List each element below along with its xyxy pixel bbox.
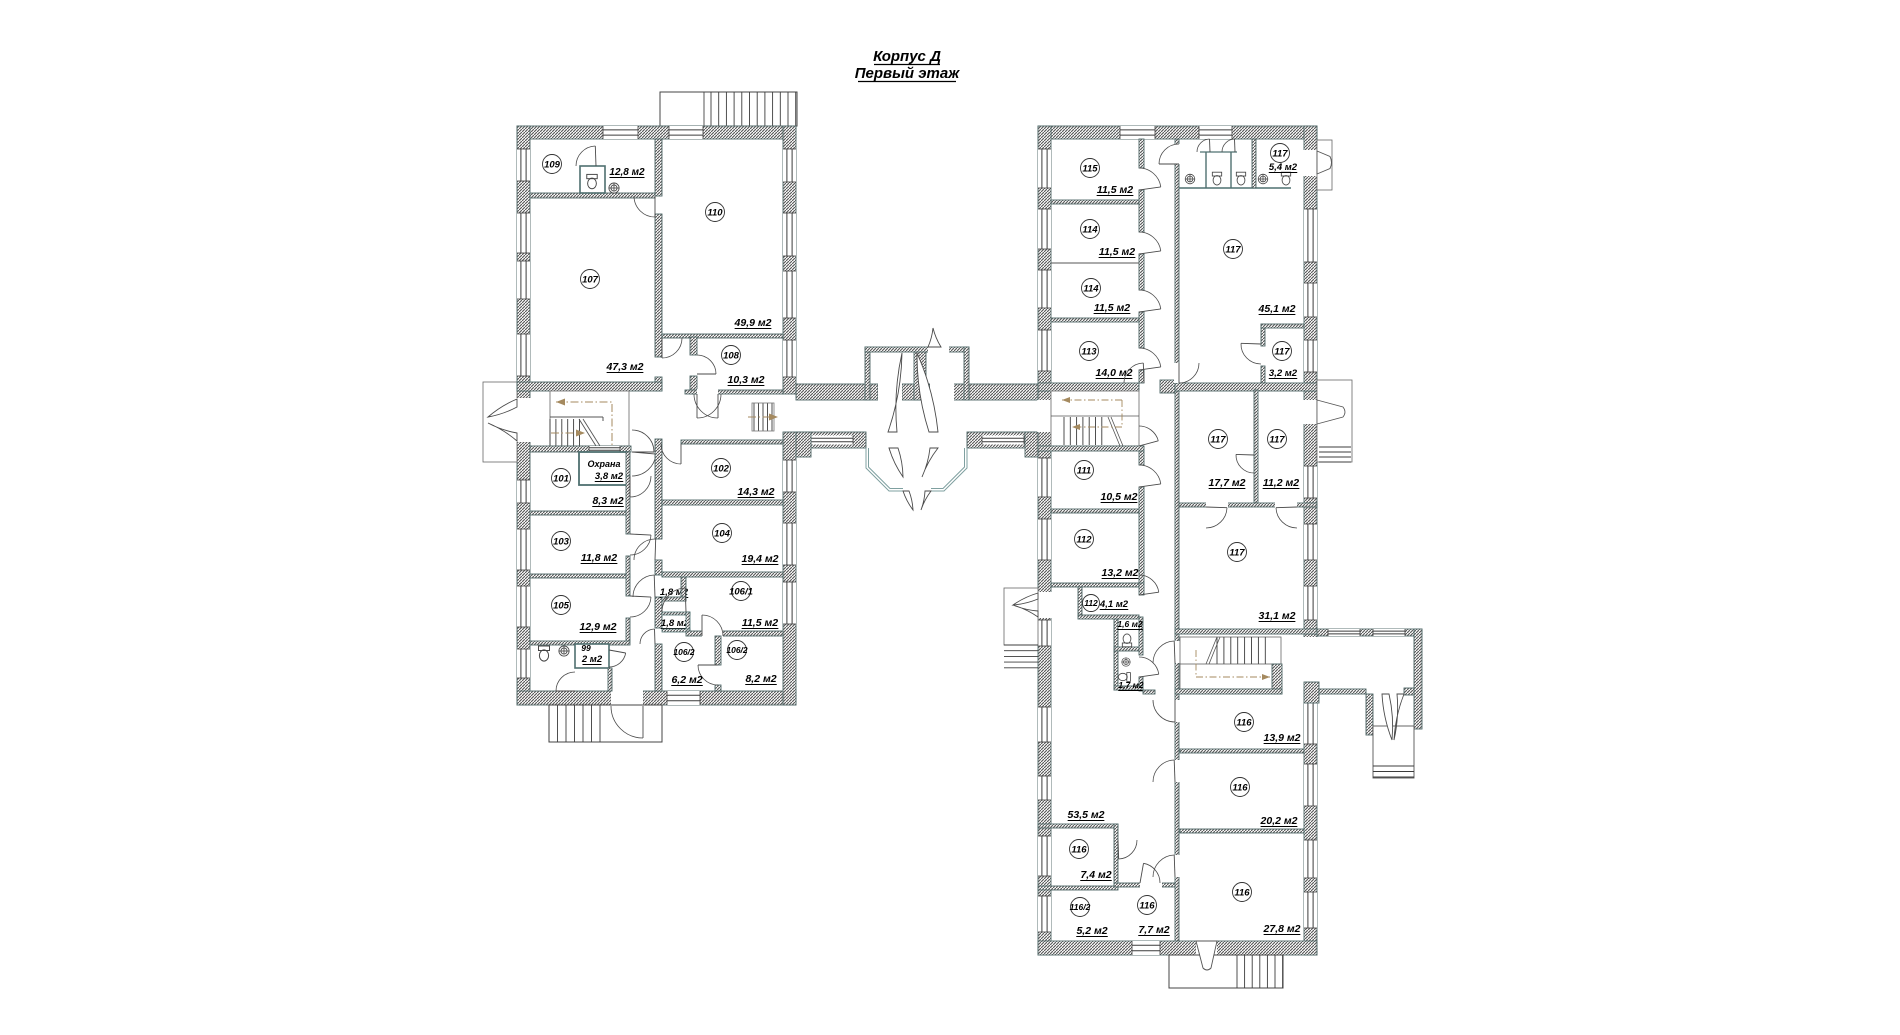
svg-text:10,5 м2: 10,5 м2 <box>1101 491 1138 503</box>
svg-text:114: 114 <box>1083 283 1099 294</box>
svg-text:117: 117 <box>1229 547 1245 558</box>
svg-text:11,5 м2: 11,5 м2 <box>1099 246 1135 258</box>
svg-text:13,2 м2: 13,2 м2 <box>1102 567 1139 579</box>
svg-text:27,8 м2: 27,8 м2 <box>1263 923 1301 935</box>
svg-text:49,9 м2: 49,9 м2 <box>734 317 772 329</box>
svg-text:11,5 м2: 11,5 м2 <box>742 617 778 629</box>
svg-text:117: 117 <box>1272 148 1288 159</box>
svg-text:112: 112 <box>1084 598 1098 608</box>
svg-text:104: 104 <box>714 528 731 539</box>
svg-text:101: 101 <box>553 473 569 484</box>
svg-text:107: 107 <box>582 274 599 285</box>
svg-text:111: 111 <box>1077 465 1091 476</box>
svg-text:11,5 м2: 11,5 м2 <box>1097 184 1133 196</box>
svg-text:112: 112 <box>1076 534 1092 545</box>
svg-text:2 м2: 2 м2 <box>581 654 603 665</box>
svg-text:53,5 м2: 53,5 м2 <box>1068 809 1105 821</box>
svg-text:116/2: 116/2 <box>1070 902 1091 912</box>
svg-text:7,4 м2: 7,4 м2 <box>1080 869 1111 881</box>
svg-text:1,7 м2: 1,7 м2 <box>1118 680 1143 690</box>
svg-text:116: 116 <box>1139 900 1155 911</box>
svg-text:7,7 м2: 7,7 м2 <box>1138 924 1169 936</box>
svg-text:99: 99 <box>581 643 591 653</box>
svg-text:116: 116 <box>1071 844 1087 855</box>
svg-text:12,9 м2: 12,9 м2 <box>580 621 617 633</box>
svg-text:13,9 м2: 13,9 м2 <box>1264 732 1301 744</box>
svg-text:106/2: 106/2 <box>673 647 695 657</box>
svg-text:106/1: 106/1 <box>729 586 753 597</box>
svg-text:117: 117 <box>1269 434 1285 445</box>
svg-text:116: 116 <box>1234 887 1250 898</box>
svg-text:10,3 м2: 10,3 м2 <box>728 374 765 386</box>
svg-text:106/2: 106/2 <box>726 645 748 655</box>
svg-text:105: 105 <box>553 600 570 611</box>
svg-text:115: 115 <box>1082 163 1098 174</box>
svg-text:4,1 м2: 4,1 м2 <box>1099 599 1129 610</box>
svg-text:1,6 м2: 1,6 м2 <box>1117 619 1142 629</box>
svg-text:20,2 м2: 20,2 м2 <box>1260 815 1298 827</box>
svg-text:113: 113 <box>1081 346 1097 357</box>
svg-text:103: 103 <box>553 536 570 547</box>
svg-text:108: 108 <box>723 350 740 361</box>
svg-text:47,3 м2: 47,3 м2 <box>606 361 644 373</box>
svg-text:17,7 м2: 17,7 м2 <box>1209 477 1246 489</box>
svg-text:116: 116 <box>1236 717 1252 728</box>
svg-text:117: 117 <box>1225 244 1241 255</box>
svg-text:3,8 м2: 3,8 м2 <box>595 471 624 482</box>
svg-text:117: 117 <box>1210 434 1226 445</box>
svg-text:14,3 м2: 14,3 м2 <box>738 486 775 498</box>
svg-text:Первый этаж: Первый этаж <box>855 65 960 82</box>
svg-text:31,1 м2: 31,1 м2 <box>1259 610 1296 622</box>
svg-text:12,8 м2: 12,8 м2 <box>609 167 645 178</box>
svg-text:3,2 м2: 3,2 м2 <box>1269 368 1298 379</box>
svg-text:1,8 м2: 1,8 м2 <box>661 618 690 629</box>
svg-text:Охрана: Охрана <box>588 459 621 469</box>
svg-text:117: 117 <box>1274 346 1290 357</box>
svg-text:8,2 м2: 8,2 м2 <box>745 673 776 685</box>
svg-text:5,4 м2: 5,4 м2 <box>1269 162 1298 173</box>
svg-text:45,1 м2: 45,1 м2 <box>1258 303 1296 315</box>
svg-text:6,2 м2: 6,2 м2 <box>671 674 702 686</box>
svg-text:110: 110 <box>707 207 723 218</box>
svg-text:5,2 м2: 5,2 м2 <box>1076 925 1107 937</box>
svg-text:102: 102 <box>713 463 730 474</box>
svg-text:11,2 м2: 11,2 м2 <box>1263 477 1299 489</box>
svg-text:114: 114 <box>1082 224 1098 235</box>
svg-text:8,3 м2: 8,3 м2 <box>592 495 623 507</box>
svg-text:Корпус Д: Корпус Д <box>873 48 941 65</box>
svg-text:116: 116 <box>1232 782 1248 793</box>
svg-text:11,5 м2: 11,5 м2 <box>1094 302 1130 314</box>
svg-text:19,4 м2: 19,4 м2 <box>742 553 779 565</box>
svg-text:11,8 м2: 11,8 м2 <box>581 552 617 564</box>
svg-text:109: 109 <box>544 159 561 170</box>
